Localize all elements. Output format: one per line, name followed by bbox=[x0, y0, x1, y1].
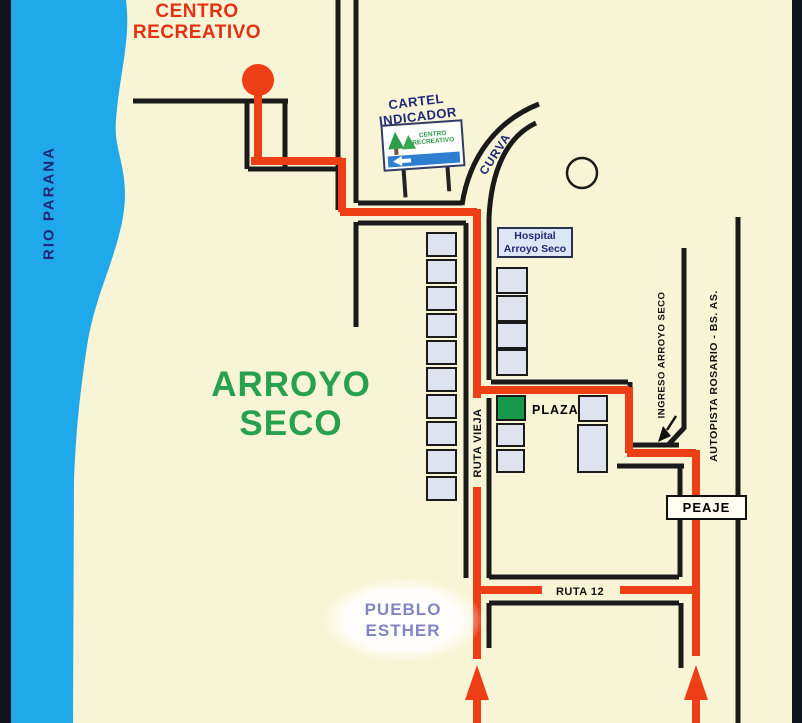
peaje-label: PEAJE bbox=[683, 500, 731, 515]
map-border-right bbox=[792, 0, 802, 723]
block bbox=[427, 395, 456, 418]
block bbox=[427, 422, 456, 445]
block bbox=[579, 396, 607, 421]
arroyo-seco-label: ARROYO SECO bbox=[211, 365, 371, 443]
block bbox=[497, 350, 527, 375]
ruta-12-label: RUTA 12 bbox=[556, 586, 604, 598]
block bbox=[427, 233, 456, 256]
ingreso-arroyo-seco-label: INGRESO ARROYO SECO bbox=[657, 292, 668, 419]
block bbox=[497, 268, 527, 293]
block bbox=[427, 287, 456, 310]
ingreso-exit-line bbox=[669, 248, 684, 444]
block bbox=[427, 314, 456, 337]
block bbox=[578, 425, 607, 472]
block bbox=[427, 477, 456, 500]
route-segment-ruta12-east bbox=[620, 587, 697, 656]
block bbox=[497, 424, 524, 446]
block bbox=[427, 341, 456, 364]
city-blocks bbox=[427, 233, 607, 500]
pueblo-esther-label: PUEBLO ESTHER bbox=[365, 599, 442, 641]
route-up-arrow-icon bbox=[684, 665, 708, 700]
hospital-label: Hospital Arroyo Seco bbox=[497, 227, 573, 258]
centro-recreativo-label: CENTRO RECREATIVO bbox=[133, 1, 261, 43]
peaje-box: PEAJE bbox=[666, 495, 747, 520]
block bbox=[427, 450, 456, 473]
destination-red-dot-icon bbox=[242, 64, 274, 96]
ruta-vieja-label: RUTA VIEJA bbox=[472, 408, 484, 477]
plaza-square bbox=[497, 396, 525, 420]
block bbox=[497, 323, 527, 348]
autopista-label: AUTOPISTA ROSARIO - BS. AS. bbox=[708, 290, 720, 462]
block bbox=[497, 450, 524, 472]
route-up-arrow-icon bbox=[465, 665, 489, 700]
roundabout-circle-icon bbox=[567, 158, 597, 188]
map-border-left bbox=[0, 0, 11, 723]
rio-parana-river bbox=[0, 0, 127, 723]
block bbox=[497, 296, 527, 321]
plaza-label: PLAZA bbox=[532, 403, 579, 417]
rio-parana-label: RIO PARANA bbox=[41, 146, 58, 260]
block bbox=[427, 368, 456, 391]
block bbox=[427, 260, 456, 283]
arroyo-seco-route-map: CENTRO RECREATIVO RIO PARANA CARTEL INDI… bbox=[0, 0, 802, 723]
